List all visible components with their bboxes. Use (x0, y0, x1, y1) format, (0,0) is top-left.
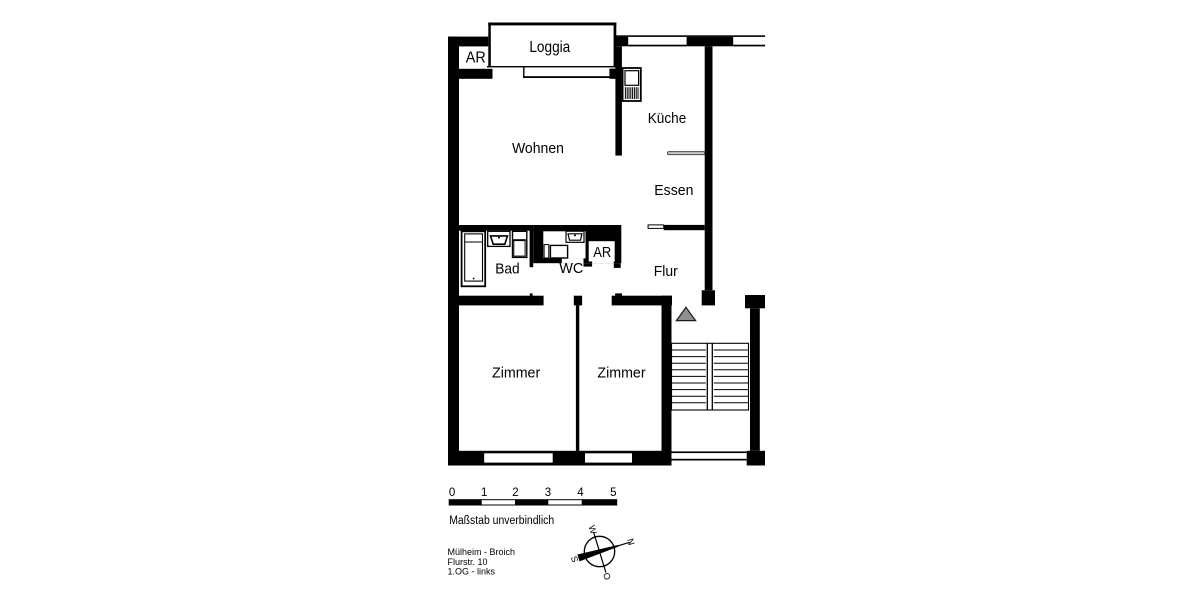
svg-text:Flurstr. 10: Flurstr. 10 (448, 557, 488, 567)
svg-text:AR: AR (466, 50, 486, 67)
svg-text:Mülheim - Broich: Mülheim - Broich (448, 547, 516, 557)
svg-text:4: 4 (577, 487, 584, 499)
svg-text:Küche: Küche (648, 111, 687, 127)
svg-text:Essen: Essen (654, 183, 693, 199)
svg-text:1.OG - links: 1.OG - links (448, 567, 496, 577)
svg-text:5: 5 (610, 487, 616, 499)
svg-text:Maßstab unverbindlich: Maßstab unverbindlich (449, 515, 554, 527)
svg-text:Zimmer: Zimmer (597, 366, 645, 382)
svg-text:Flur: Flur (654, 264, 678, 280)
svg-text:Zimmer: Zimmer (492, 366, 540, 382)
svg-text:2: 2 (512, 487, 518, 499)
svg-text:0: 0 (449, 487, 455, 499)
svg-text:3: 3 (545, 487, 551, 499)
svg-text:WC: WC (559, 261, 583, 277)
svg-text:1: 1 (481, 487, 487, 499)
svg-text:Loggia: Loggia (529, 39, 570, 56)
svg-text:Bad: Bad (495, 262, 519, 278)
svg-text:AR: AR (593, 245, 611, 261)
svg-text:Wohnen: Wohnen (512, 141, 564, 157)
